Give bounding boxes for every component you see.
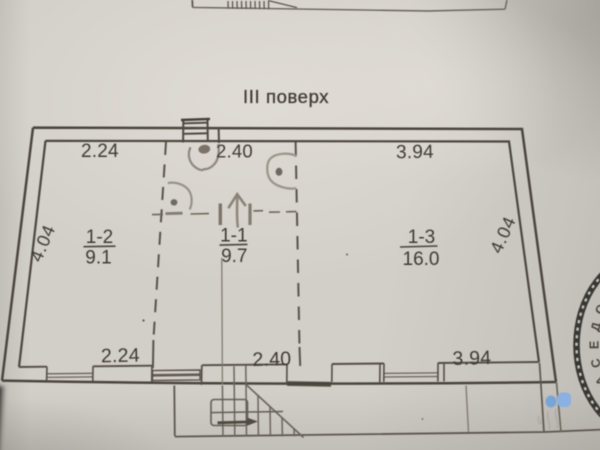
svg-text:1-2: 1-2 [86, 227, 113, 248]
svg-text:Д: Д [588, 321, 600, 333]
svg-text:С: С [588, 357, 600, 369]
svg-text:О: О [592, 302, 600, 317]
svg-text:9.7: 9.7 [221, 246, 247, 267]
svg-text:1-1: 1-1 [220, 226, 247, 247]
svg-text:16.0: 16.0 [403, 249, 440, 270]
svg-text:ІІІ поверх: ІІІ поверх [243, 86, 329, 107]
svg-text:9.1: 9.1 [85, 248, 111, 269]
svg-text:2.40: 2.40 [216, 141, 253, 162]
svg-text:2.40: 2.40 [252, 348, 291, 371]
svg-text:2.24: 2.24 [81, 141, 119, 162]
svg-text:4.04: 4.04 [486, 213, 520, 256]
svg-text:3.94: 3.94 [452, 347, 491, 370]
svg-text:3.94: 3.94 [396, 142, 434, 164]
svg-text:А: А [592, 373, 600, 388]
svg-text:Е: Е [587, 341, 600, 349]
svg-text:4.04: 4.04 [26, 222, 59, 265]
svg-text:1-3: 1-3 [408, 227, 435, 248]
svg-text:2.24: 2.24 [101, 345, 140, 368]
